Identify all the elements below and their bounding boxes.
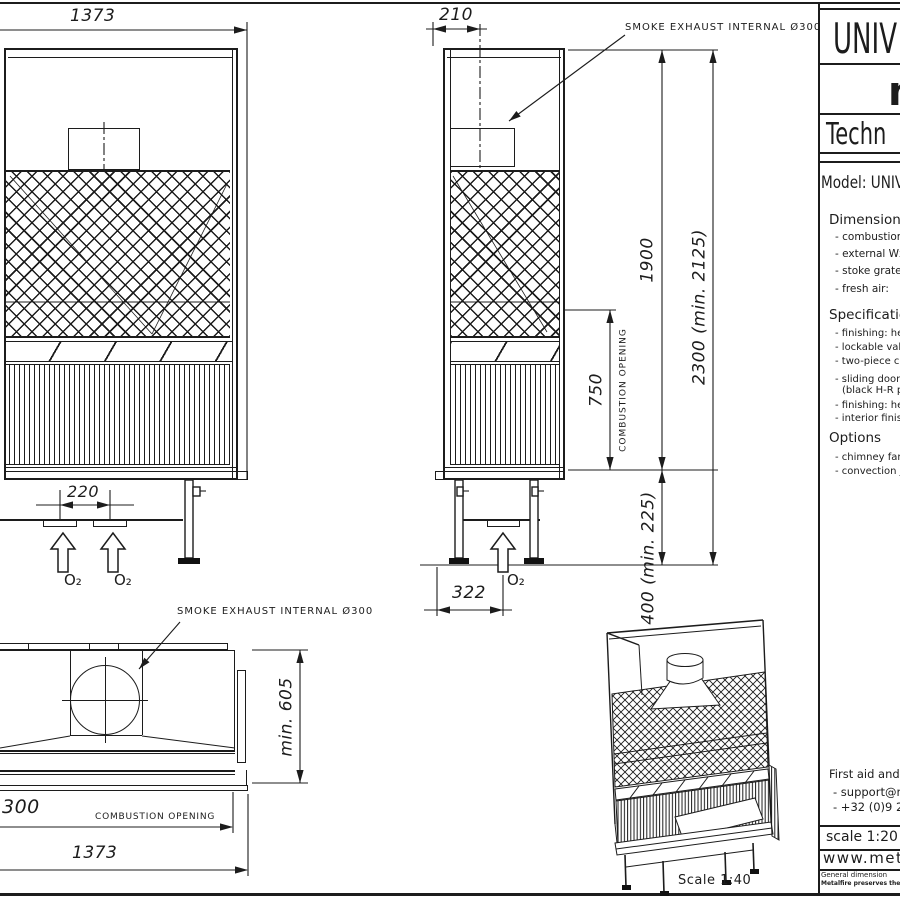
tb-footer-line2: Metalfire preserves the ri xyxy=(821,881,900,887)
tb-contact-line: - +32 (0)9 2 xyxy=(833,802,900,814)
tb-brand-title: UNIV xyxy=(833,18,897,60)
isometric-view xyxy=(585,612,797,897)
dim-side-depth: 210 xyxy=(439,7,473,24)
tb-specification-item: - two-piece ca xyxy=(835,357,900,367)
label-o2-front-left: O₂ xyxy=(64,573,82,588)
dim-top-opening-width: 300 xyxy=(2,798,40,817)
label-iso-scale: Scale 1:40 xyxy=(678,874,751,887)
tb-dimensions-item: - fresh air: xyxy=(835,284,889,295)
tb-dimensions-item: - combustion o xyxy=(835,232,900,243)
dim-leg-height: 400 (min. 225) xyxy=(641,491,658,624)
leg-feet xyxy=(178,558,544,564)
tb-model: Model: UNIVE xyxy=(821,175,900,192)
label-smoke-exhaust-top: SMOKE EXHAUST INTERNAL Ø300 xyxy=(177,607,373,617)
tb-specification-item: - sliding door i xyxy=(835,375,900,385)
label-o2-front-right: O₂ xyxy=(114,573,132,588)
drawing-sheet: 1373 210 SMOKE EXHAUST INTERNAL Ø300 220… xyxy=(0,0,900,900)
dim-body-height: 1900 xyxy=(640,237,657,282)
tb-contact-line: - support@me xyxy=(833,787,900,799)
tb-dimensions-item: - stoke grate W xyxy=(835,266,900,277)
tb-specification-item: - lockable valv xyxy=(835,343,900,353)
tb-website: www.met xyxy=(823,851,900,866)
tb-options-item: - convection j xyxy=(835,467,900,477)
label-combustion-opening-side: COMBUSTION OPENING xyxy=(620,328,629,452)
tb-contact-line: First aid and xyxy=(829,769,900,781)
dim-total-height: 2300 (min. 2125) xyxy=(692,229,709,385)
tb-dimensions-heading: Dimensions xyxy=(829,214,900,228)
tb-options-item: - chimney fan xyxy=(835,453,900,463)
tb-specification-item: - interior finishi xyxy=(835,414,900,424)
tb-doc-type: Techn xyxy=(826,120,886,150)
dim-front-width: 1373 xyxy=(70,8,115,25)
label-o2-side: O₂ xyxy=(507,573,525,588)
tb-row-line xyxy=(818,63,900,65)
tb-row-line xyxy=(818,152,900,154)
tb-specification-item: - finishing: hea xyxy=(835,329,900,339)
tb-logo-wordmark: m xyxy=(888,72,900,112)
tb-row-line xyxy=(818,825,900,827)
o2-flow-arrows xyxy=(51,533,515,572)
legs xyxy=(185,480,538,558)
label-combustion-opening-top: COMBUSTION OPENING xyxy=(95,813,215,822)
tb-specification-item: - finishing: hea xyxy=(835,401,900,411)
tb-scale: scale 1:20 xyxy=(826,830,898,844)
dim-top-depth: min. 605 xyxy=(279,677,296,756)
tb-specification-item: (black H-R p xyxy=(842,386,900,396)
dim-opening-height: 750 xyxy=(589,373,606,407)
tb-specification-heading: Specification xyxy=(829,309,900,323)
tb-row-line xyxy=(818,161,900,163)
dim-top-width: 1373 xyxy=(72,845,117,862)
label-smoke-exhaust-side: SMOKE EXHAUST INTERNAL Ø300 xyxy=(625,23,821,33)
tb-options-heading: Options xyxy=(829,432,881,446)
tb-dimensions-item: - external WxD xyxy=(835,249,900,260)
tb-footer-line1: General dimension xyxy=(821,872,887,879)
tb-row-line xyxy=(818,8,900,10)
dim-side-base-depth: 322 xyxy=(452,585,486,602)
dim-front-inlet-spacing: 220 xyxy=(67,484,99,500)
